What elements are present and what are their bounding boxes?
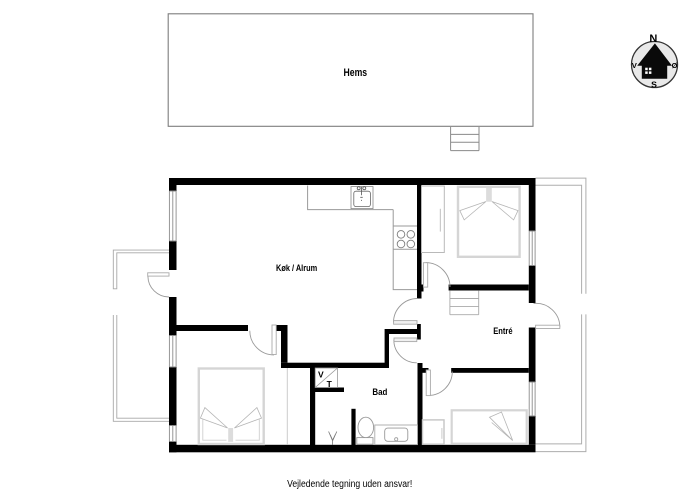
svg-text:Ø: Ø	[672, 61, 678, 70]
svg-text:Hems: Hems	[344, 67, 368, 79]
svg-text:Bad: Bad	[372, 387, 387, 397]
svg-text:V: V	[318, 370, 324, 380]
svg-text:Vejledende tegning uden ansvar: Vejledende tegning uden ansvar!	[287, 479, 412, 490]
svg-text:N: N	[649, 33, 657, 45]
svg-text:V: V	[632, 61, 638, 70]
svg-text:S: S	[651, 79, 657, 89]
svg-text:Entré: Entré	[493, 326, 512, 336]
svg-text:Køk / Alrum: Køk / Alrum	[276, 263, 317, 273]
svg-text:T: T	[327, 379, 333, 389]
